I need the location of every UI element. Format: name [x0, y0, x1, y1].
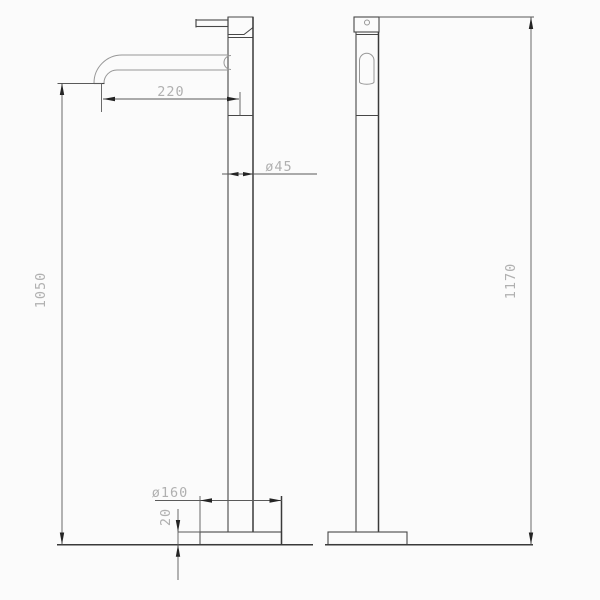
dim-1050-arrow-top: [60, 83, 64, 95]
dim-20-arrow-down: [176, 520, 180, 532]
spout-outer-bend: [94, 55, 122, 83]
dim-160-arrow-left: [200, 498, 212, 502]
lever-handle-outline: [196, 20, 228, 27]
dimension-annotations: 220 ø45 1050 1170: [33, 17, 534, 580]
spout-front-capsule-bottom: [360, 82, 375, 84]
dim-160-label: ø160: [152, 485, 189, 501]
dim-20-arrow-up: [176, 545, 180, 557]
dim-base-thickness: 20: [158, 508, 200, 580]
spout-inner-bend: [104, 70, 117, 83]
dim-1170-arrow-top: [529, 17, 533, 29]
dim-160-arrow-right: [270, 498, 282, 502]
dim-spout-reach: 220: [102, 84, 241, 116]
dim-column-diameter: ø45: [222, 159, 317, 176]
dim-45-arrow-left: [228, 172, 239, 176]
dim-45-label: ø45: [265, 159, 292, 175]
dim-total-height: 1170: [379, 17, 534, 545]
dim-1050-label: 1050: [33, 272, 49, 309]
handle-pin-circle: [365, 20, 370, 25]
spout-front-capsule: [360, 53, 375, 82]
base-outline-side: [200, 532, 282, 545]
dim-spout-height: 1050: [33, 83, 102, 545]
dim-1170-arrow-bottom: [529, 533, 533, 545]
dim-220-label: 220: [157, 84, 184, 100]
base-outline-front: [328, 532, 407, 545]
dim-20-label: 20: [158, 508, 174, 526]
dim-220-arrow-right: [227, 97, 239, 101]
dim-45-arrow-right: [243, 172, 254, 176]
dim-1050-arrow-bottom: [60, 533, 64, 545]
dim-1170-label: 1170: [503, 263, 519, 300]
faucet-technical-drawing: 220 ø45 1050 1170: [0, 0, 600, 600]
drawing-canvas: 220 ø45 1050 1170: [0, 0, 600, 600]
head-outline: [228, 17, 253, 35]
side-view: [57, 17, 313, 545]
front-view: [325, 17, 533, 545]
dim-220-arrow-left: [103, 97, 115, 101]
